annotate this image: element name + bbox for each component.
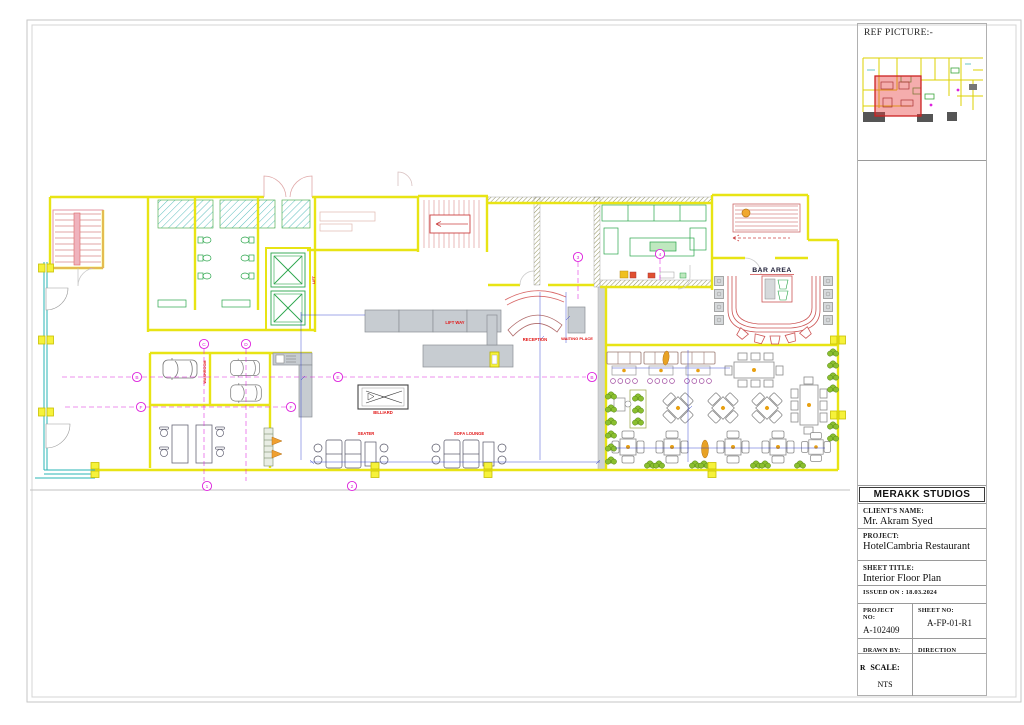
issued-on-section: ISSUED ON : 18.03.2024: [858, 586, 986, 604]
grid-bubble-label: 4: [659, 252, 662, 258]
car-display: [163, 358, 261, 403]
drawing-sheet: B F F B C D E 3 4 1 2 BAR AREA RECEPTION…: [0, 0, 1024, 725]
grid-bubble-label: C: [202, 342, 206, 348]
scale-label: SCALE:: [858, 654, 912, 672]
client-label: CLIENT'S NAME:: [858, 504, 986, 515]
reception-label: RECEPTION: [523, 337, 547, 342]
left-staircase: [53, 210, 103, 268]
lift-way-label: LIFT WAY: [445, 320, 464, 325]
kitchen-equipment: [602, 205, 706, 256]
lift-label: LIFT: [312, 275, 316, 284]
grid-bubble-label: B: [135, 375, 138, 381]
sheet-title: Interior Floor Plan: [858, 572, 986, 584]
grid-bubble-label: E: [336, 375, 339, 381]
grid-bubble-label: F: [140, 405, 143, 411]
ref-picture-label: REF PICTURE:-: [858, 24, 986, 42]
client-section: CLIENT'S NAME: Mr. Akram Syed: [858, 504, 986, 529]
sheet-title-section: SHEET TITLE: Interior Floor Plan: [858, 561, 986, 586]
billiard-label: BILLIARD: [373, 410, 393, 415]
washroom-label: WASHROOM: [203, 360, 207, 383]
bar-area: [715, 276, 833, 344]
issued-on: ISSUED ON : 18.03.2024: [858, 586, 986, 596]
fire-stair-room: [733, 204, 800, 241]
office-room: [160, 425, 283, 466]
project-section: PROJECT: HotelCambria Restaurant: [858, 529, 986, 561]
reception-counters: [365, 291, 585, 367]
numbers-section: PROJECT NO: A-102409 SHEET NO: A-FP-01-R…: [858, 604, 986, 639]
kitchen-pass-items: [620, 271, 686, 278]
dining-booths: [607, 351, 715, 384]
project-no: A-102409: [858, 621, 912, 635]
center-staircase: [424, 200, 479, 248]
grid-bubble-label: 3: [577, 255, 580, 261]
direction-label: DIRECTION: [913, 644, 961, 654]
scale-value: NTS: [858, 672, 912, 689]
studio-name: MERAKK STUDIOS: [859, 487, 985, 502]
project-label: PROJECT:: [858, 529, 986, 540]
scale-section: SCALE: NTS: [858, 654, 986, 696]
door-arcs: [78, 172, 761, 289]
store-shelves: [320, 212, 375, 231]
sheet-no: A-FP-01-R1: [913, 614, 986, 628]
title-block: REF PICTURE:- MERAKK STUDIOS CLIENT'S NA…: [857, 23, 987, 696]
client-name: Mr. Akram Syed: [858, 515, 986, 527]
title-block-spacer: [858, 161, 986, 486]
sheet-title-label: SHEET TITLE:: [858, 561, 986, 572]
sofa-lounge-label: SOFA LOUNGE: [454, 431, 485, 436]
column-blocks: [39, 264, 846, 478]
planter: [614, 390, 646, 428]
grid-bubble-label: 2: [351, 484, 354, 490]
drawn-by-label: DRAWN BY:: [858, 644, 905, 654]
dining-diamond-tables: [655, 385, 789, 430]
grid-bubble-label: D: [244, 342, 248, 348]
washroom-fixtures: [158, 237, 254, 307]
bar-area-label: BAR AREA: [752, 267, 792, 274]
lounge-booths: [314, 440, 506, 468]
waiting-place-label: WAITING PLACE: [561, 336, 593, 341]
sheet-no-label: SHEET NO:: [913, 604, 986, 614]
seater-label: SEATER: [358, 431, 375, 436]
dining-square-tables: [612, 431, 830, 463]
hatched-walls: [158, 197, 712, 470]
studio-name-box: MERAKK STUDIOS: [858, 486, 986, 504]
project-no-label: PROJECT NO:: [858, 604, 912, 621]
billiard-table: [358, 385, 408, 409]
grid-bubble-label: F: [290, 405, 293, 411]
elevator-shafts: [271, 253, 305, 325]
grid-bubble-label: B: [590, 375, 593, 381]
grid-bubble-label: 1: [206, 484, 209, 490]
drawn-by-section: DRAWN BY: R DIRECTION: [858, 639, 986, 654]
ref-picture-box: REF PICTURE:-: [858, 24, 986, 161]
exterior-door-arcs: [46, 288, 70, 448]
project-name: HotelCambria Restaurant: [858, 540, 986, 552]
